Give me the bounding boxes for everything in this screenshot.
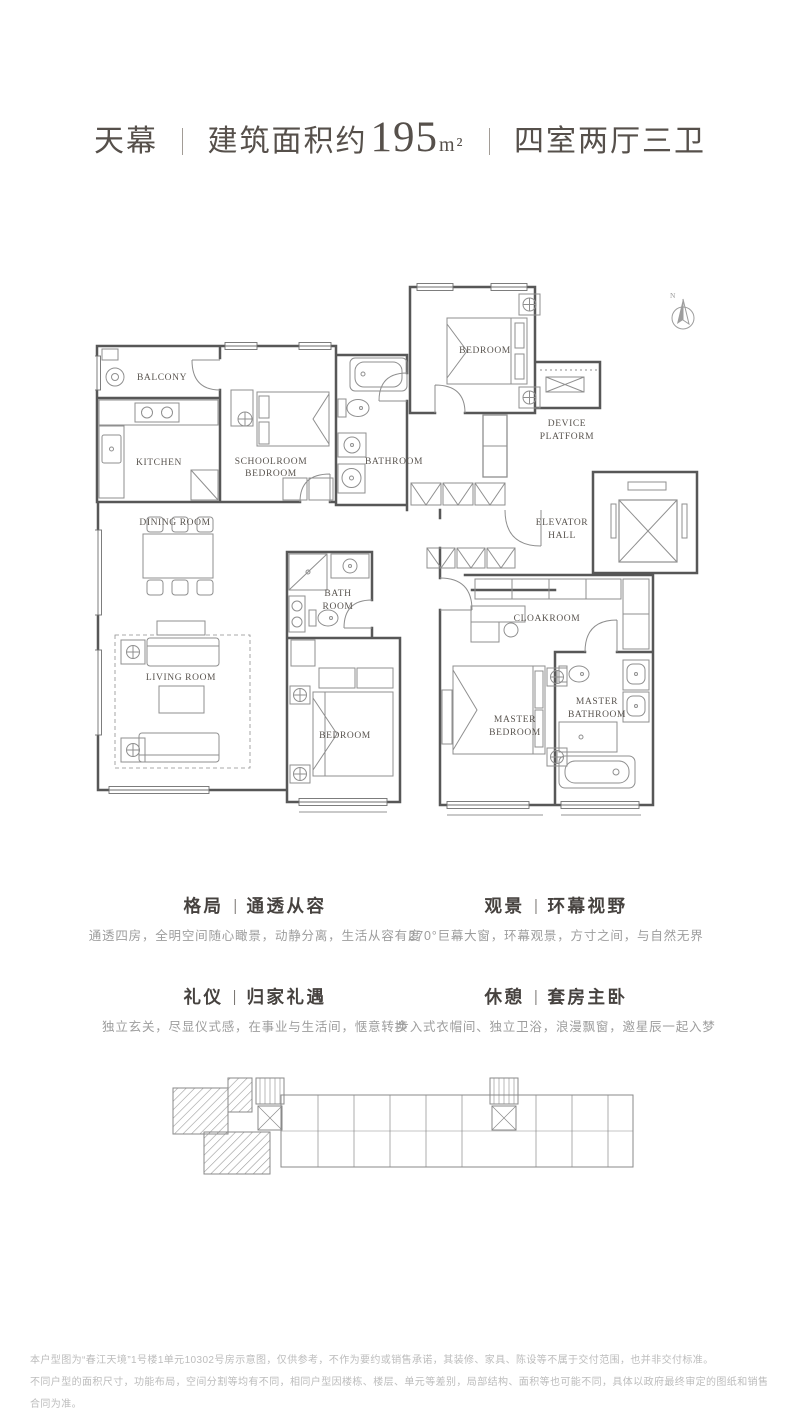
schoolroom-bed xyxy=(231,390,333,500)
label-master-bed-2: BEDROOM xyxy=(489,728,541,738)
compass-label: N xyxy=(670,291,676,300)
building-key-plan xyxy=(168,1072,643,1178)
feature-category: 礼仪 xyxy=(184,987,224,1007)
master-suite-door xyxy=(440,578,472,610)
label-living: LIVING ROOM xyxy=(146,673,216,683)
entry-door xyxy=(505,510,541,546)
feature-description: 270°巨幕大窗，环幕观景，方寸之间，与自然无界 xyxy=(408,930,703,942)
kitchen-counter xyxy=(99,400,218,500)
feature-heading: 礼仪归家礼遇 xyxy=(102,986,408,1008)
layout-spec: 四室两厅三卫 xyxy=(514,125,706,158)
disclaimer-line-2: 不同户型的面积尺寸，功能布局，空间分割等均有不同，相同户型因楼栋、楼层、单元等差… xyxy=(30,1372,775,1416)
area-unit: m² xyxy=(439,134,465,156)
area-value: 195 xyxy=(370,114,438,161)
label-master-bath-2: BATHROOM xyxy=(568,710,626,720)
feature-description: 独立玄关，尽显仪式感，在事业与生活间，惬意转换 xyxy=(102,1021,408,1033)
label-bath-2: ROOM xyxy=(323,602,354,612)
bedroom-north-door xyxy=(435,385,465,413)
project-name: 天幕 xyxy=(94,125,158,158)
elevator-shaft-wall xyxy=(593,472,697,573)
area-prefix: 建筑面积约 xyxy=(207,125,367,158)
living-set xyxy=(115,621,250,768)
heading-separator xyxy=(235,990,236,1005)
bed-mid xyxy=(290,640,393,783)
hall-closets xyxy=(411,483,515,568)
heading-separator xyxy=(536,899,537,914)
sink-north xyxy=(338,433,366,457)
label-cloakroom: CLOAKROOM xyxy=(514,614,581,624)
label-balcony: BALCONY xyxy=(137,373,187,383)
master-bathroom-door xyxy=(585,620,617,652)
title-separator xyxy=(489,128,491,155)
balcony-door xyxy=(192,360,220,390)
washing-machine xyxy=(338,464,365,493)
feature-heading: 观景环幕视野 xyxy=(408,895,703,917)
label-elevator-1: ELEVATOR xyxy=(536,518,589,528)
master-bath-fixtures xyxy=(559,660,649,788)
label-device-1: DEVICE xyxy=(548,419,586,429)
area-text: 建筑面积约195m² xyxy=(207,125,464,158)
label-dining: DINING ROOM xyxy=(139,518,210,528)
feature-layout: 格局通透从容 通透四房，全明空间随心瞰景，动静分离，生活从容有度 xyxy=(89,895,422,942)
feature-heading: 休憩套房主卧 xyxy=(396,986,715,1008)
label-bedroom-north: BEDROOM xyxy=(459,346,511,356)
heading-separator xyxy=(234,899,235,914)
feature-title: 套房主卧 xyxy=(547,987,627,1007)
feature-title: 归家礼遇 xyxy=(247,987,327,1007)
title-separator xyxy=(182,128,184,155)
brochure-page: 天幕建筑面积约195m²四室两厅三卫 xyxy=(0,0,800,1423)
label-bath-1: BATH xyxy=(324,589,351,599)
floorplan-svg: N BALCONY KITCHEN SCHOOLROOM BEDROOM BAT… xyxy=(95,278,715,838)
label-bedroom-mid: BEDROOM xyxy=(319,731,371,741)
feature-category: 观景 xyxy=(485,896,525,916)
stair-core-1 xyxy=(256,1078,284,1130)
toilet-north xyxy=(338,399,369,417)
label-schoolroom-1: SCHOOLROOM xyxy=(235,457,308,467)
label-schoolroom-2: BEDROOM xyxy=(245,469,297,479)
disclaimer-line-1: 本户型图为“春江天境”1号楼1单元10302号房示意图，仅供参考，不作为要约或销… xyxy=(30,1350,775,1372)
bathtub-north xyxy=(350,358,407,391)
compass-icon: N xyxy=(670,291,694,329)
feature-view: 观景环幕视野 270°巨幕大窗，环幕观景，方寸之间，与自然无界 xyxy=(408,895,703,942)
disclaimer: 本户型图为“春江天境”1号楼1单元10302号房示意图，仅供参考，不作为要约或销… xyxy=(30,1350,775,1416)
label-master-bath-1: MASTER xyxy=(576,697,618,707)
elevator-cab xyxy=(611,482,687,562)
label-device-2: PLATFORM xyxy=(540,432,594,442)
label-bathroom: BATHROOM xyxy=(365,457,423,467)
laundry-sink xyxy=(102,349,124,386)
label-master-bed-1: MASTER xyxy=(494,715,536,725)
feature-category: 格局 xyxy=(183,896,223,916)
device-platform-unit xyxy=(540,370,600,392)
feature-title: 通透从容 xyxy=(246,896,326,916)
feature-description: 通透四房，全明空间随心瞰景，动静分离，生活从容有度 xyxy=(89,930,422,942)
heading-separator xyxy=(535,990,536,1005)
label-kitchen: KITCHEN xyxy=(136,458,182,468)
label-elevator-2: HALL xyxy=(548,531,576,541)
page-title: 天幕建筑面积约195m²四室两厅三卫 xyxy=(0,116,800,167)
walls xyxy=(97,287,697,805)
feature-category: 休憩 xyxy=(484,987,524,1007)
keyplan-svg xyxy=(168,1072,643,1178)
stair-core-2 xyxy=(490,1078,518,1130)
feature-rest: 休憩套房主卧 步入式衣帽间、独立卫浴，浪漫飘窗，邀星辰一起入梦 xyxy=(396,986,715,1033)
feature-heading: 格局通透从容 xyxy=(89,895,422,917)
floorplan: N BALCONY KITCHEN SCHOOLROOM BEDROOM BAT… xyxy=(95,278,715,838)
feature-etiquette: 礼仪归家礼遇 独立玄关，尽显仪式感，在事业与生活间，惬意转换 xyxy=(102,986,408,1033)
dining-set xyxy=(143,517,213,595)
feature-title: 环幕视野 xyxy=(548,896,628,916)
highlighted-unit xyxy=(173,1078,270,1174)
feature-description: 步入式衣帽间、独立卫浴，浪漫飘窗，邀星辰一起入梦 xyxy=(396,1021,715,1033)
bed-north xyxy=(447,294,540,477)
